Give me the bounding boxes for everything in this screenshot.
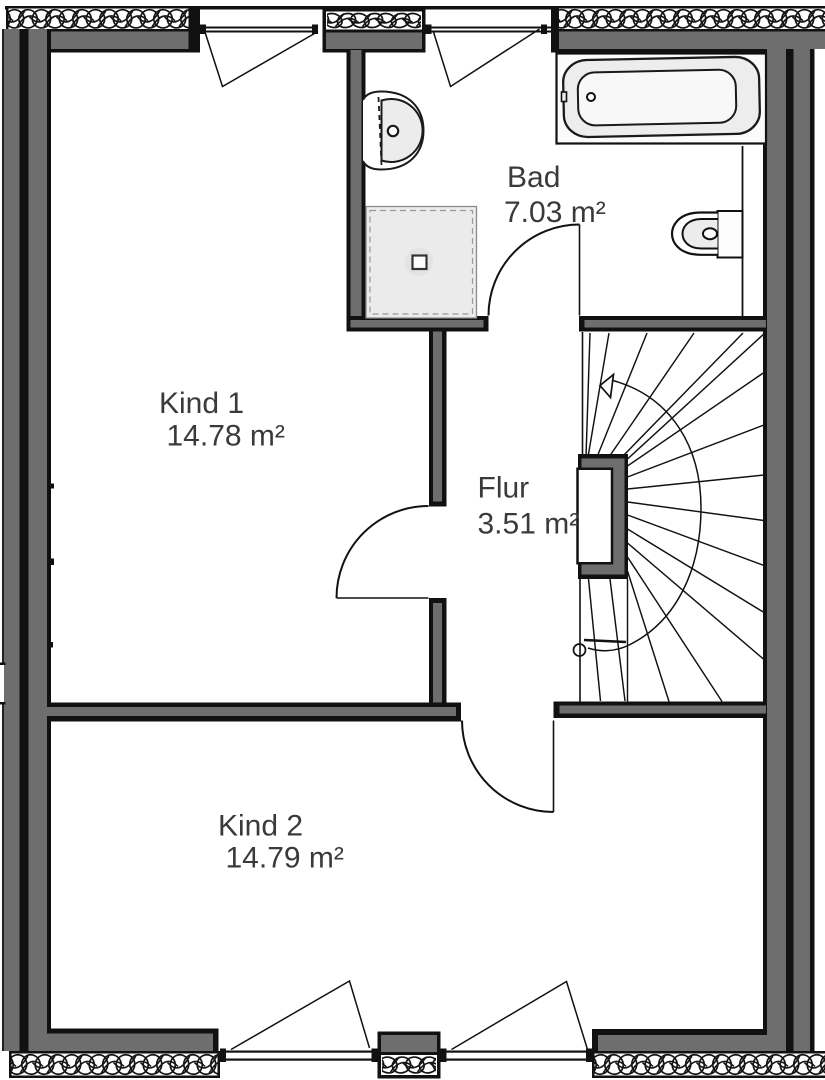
svg-text:14.78 m²: 14.78 m² — [167, 420, 285, 453]
svg-text:7.03 m²: 7.03 m² — [504, 196, 606, 229]
svg-text:14.79 m²: 14.79 m² — [226, 842, 344, 875]
svg-text:Kind 1: Kind 1 — [159, 387, 244, 420]
svg-text:Bad: Bad — [507, 161, 560, 194]
svg-text:Kind 2: Kind 2 — [218, 810, 303, 843]
svg-text:Flur: Flur — [478, 472, 530, 505]
svg-text:3.51 m²: 3.51 m² — [478, 508, 580, 541]
